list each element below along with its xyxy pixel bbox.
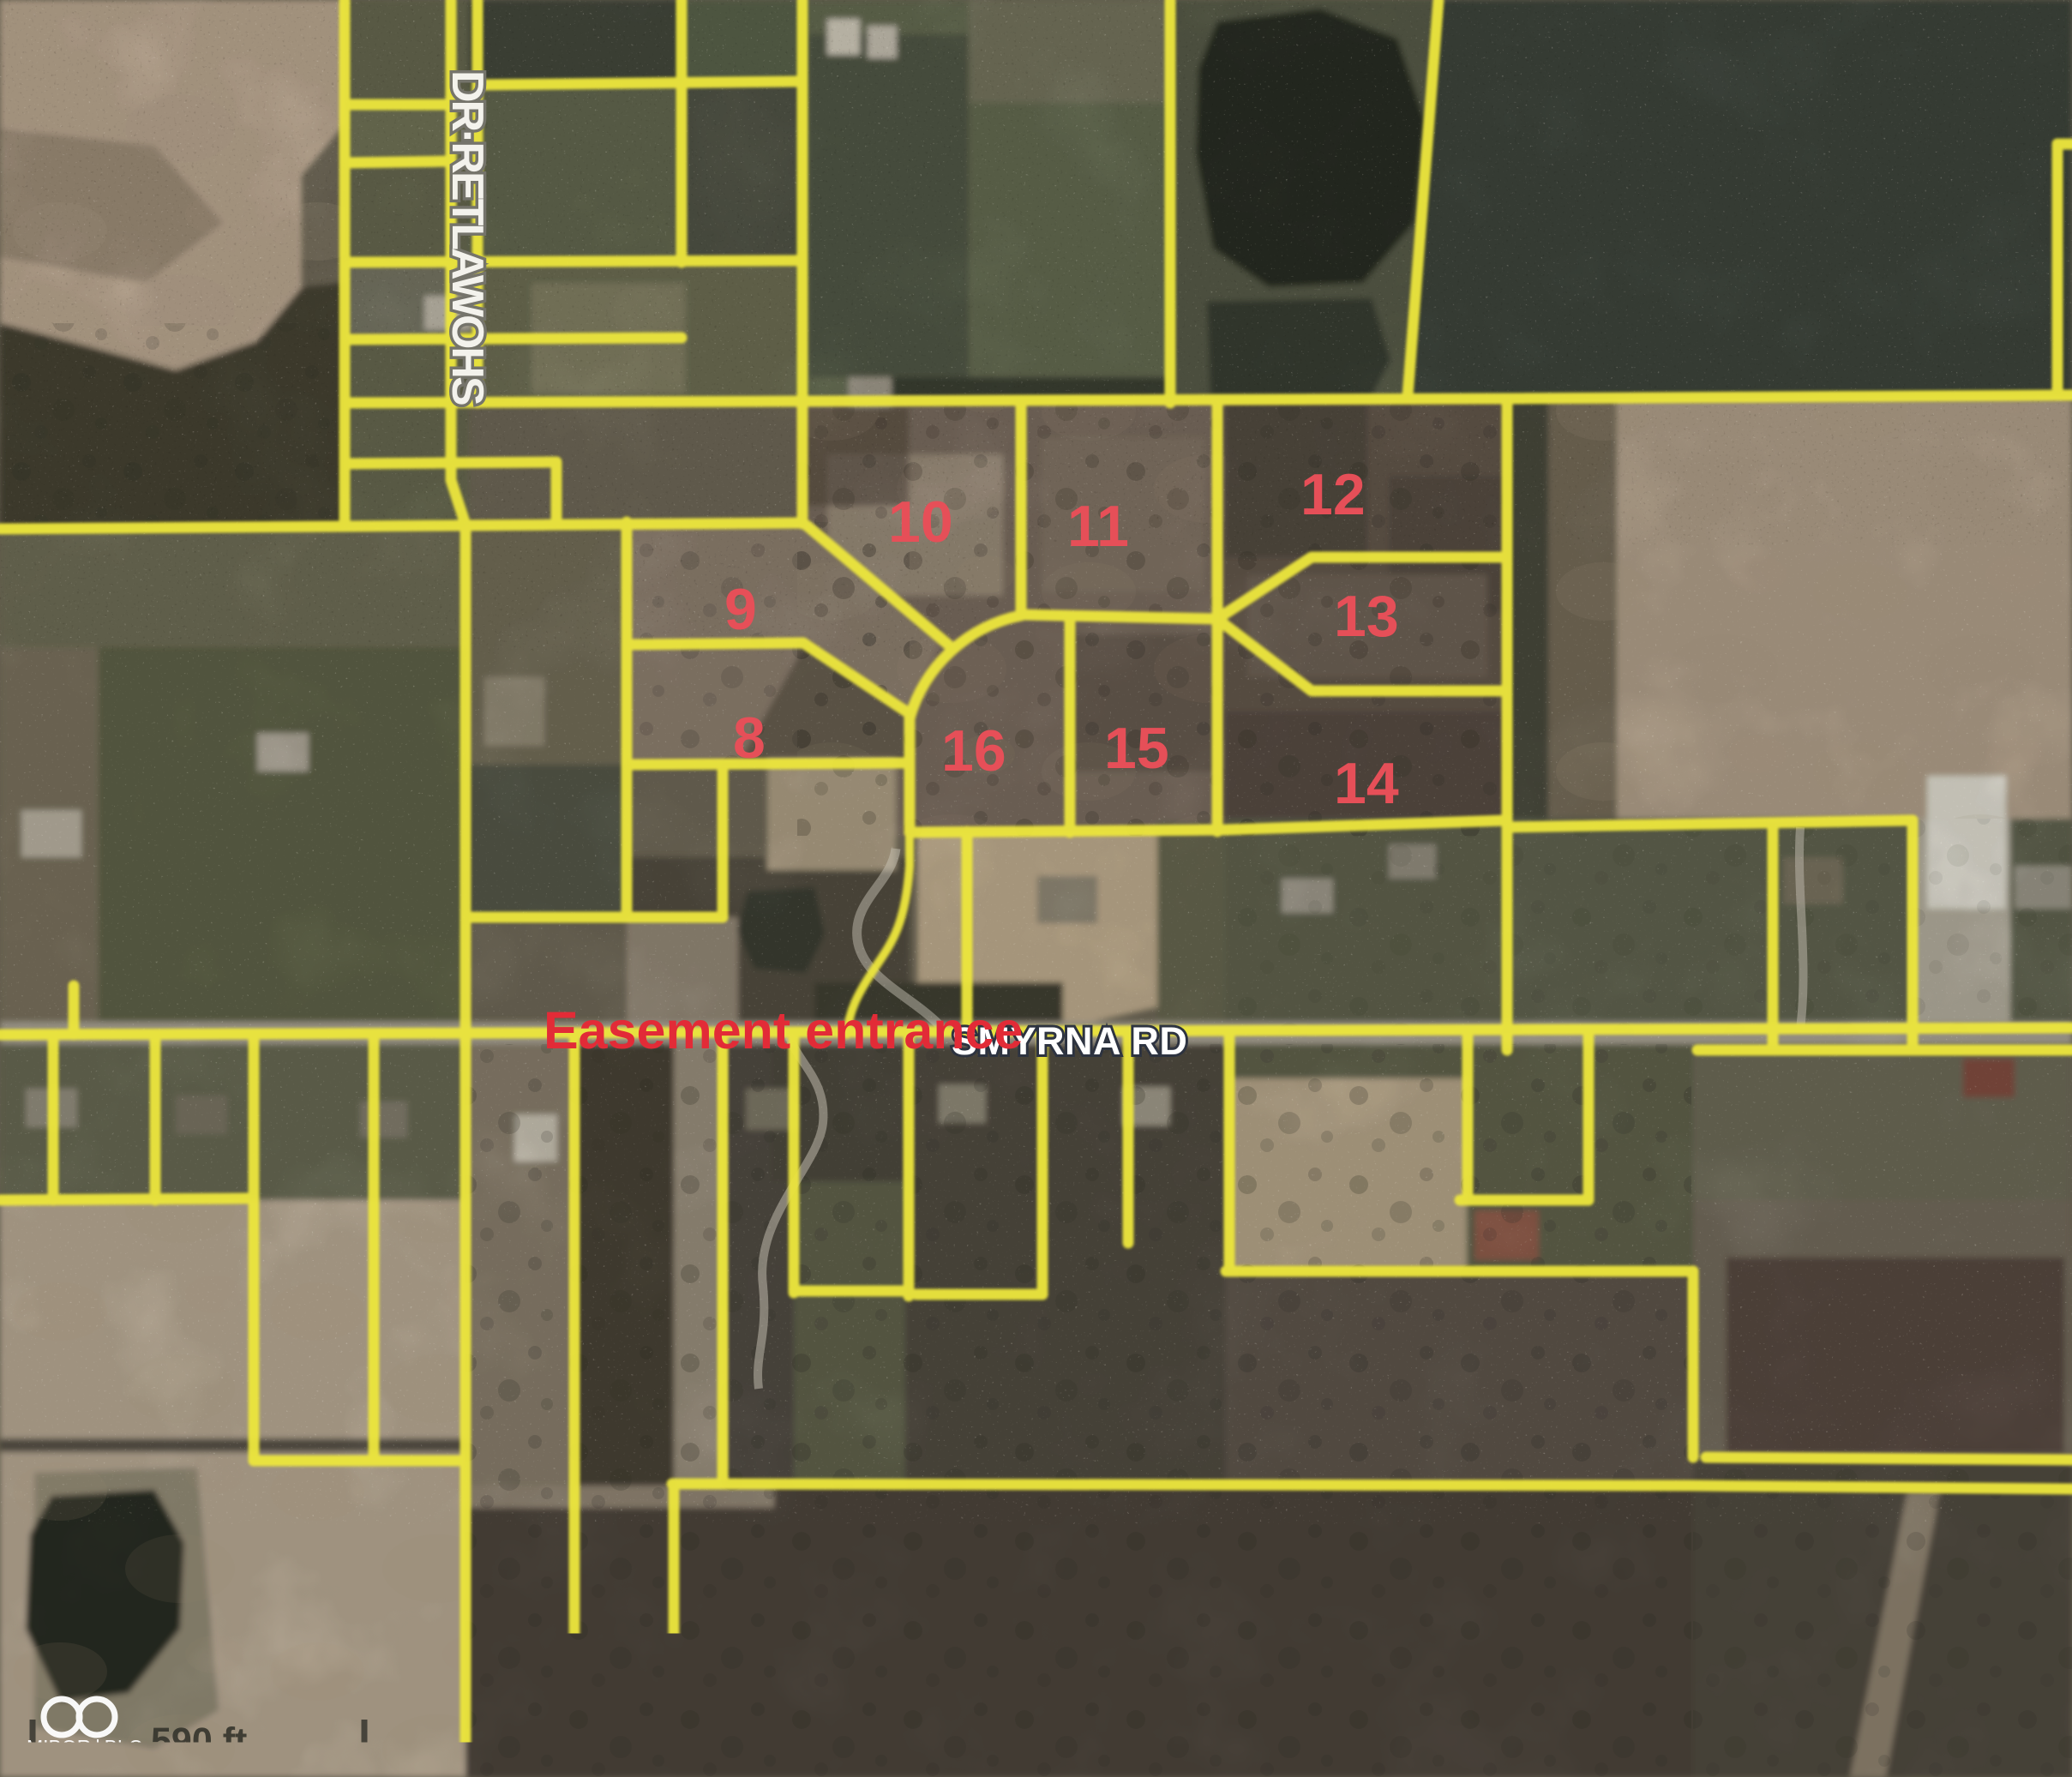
svg-text:MIBOR | BLC: MIBOR | BLC	[27, 1736, 142, 1758]
svg-text:9: 9	[724, 577, 757, 642]
svg-text:Easement entrance: Easement entrance	[544, 1001, 1023, 1060]
svg-text:15: 15	[1104, 716, 1169, 781]
svg-text:11: 11	[1067, 494, 1129, 559]
svg-text:13: 13	[1334, 584, 1399, 649]
svg-text:10: 10	[888, 489, 953, 555]
svg-text:DR·RETLAWOHS: DR·RETLAWOHS	[442, 70, 492, 405]
svg-text:590 ft: 590 ft	[151, 1720, 247, 1762]
svg-text:16: 16	[941, 718, 1006, 783]
svg-text:14: 14	[1334, 751, 1399, 816]
svg-text:8: 8	[733, 705, 766, 771]
svg-text:12: 12	[1300, 462, 1366, 527]
